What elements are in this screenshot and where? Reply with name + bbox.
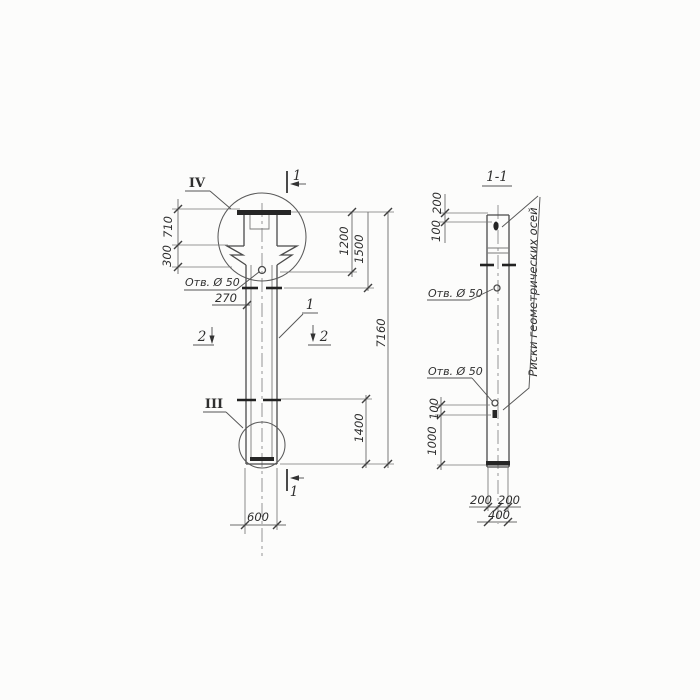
dim-600: 600 xyxy=(230,468,286,534)
dim-200-right-text: 200 xyxy=(498,493,520,507)
section-cut-1-top: 1 xyxy=(287,168,306,193)
axis-mark-lower xyxy=(493,410,498,418)
position-1-text: 1 xyxy=(306,297,315,313)
dim-270: 270 xyxy=(212,291,251,309)
dim-1200-text: 1200 xyxy=(337,226,351,255)
dim-7160-text: 7160 xyxy=(374,318,388,347)
hole-section-lower xyxy=(492,400,498,406)
section-title-text: 1-1 xyxy=(486,169,508,185)
dim-chain-section-top: 200 100 xyxy=(429,192,492,243)
cut-1-bottom-text: 1 xyxy=(290,484,299,500)
detail-III-text: III xyxy=(205,397,223,412)
detail-label-IV: IV xyxy=(185,176,231,209)
cut-2-left-text: 2 xyxy=(197,329,207,345)
section-cut-2-left: 2 xyxy=(193,327,215,345)
section-title: 1-1 xyxy=(482,169,512,186)
hole-section-upper xyxy=(494,285,500,291)
cut-arrow-left-icon xyxy=(290,475,299,481)
dim-chain-section-mid: 100 1000 xyxy=(425,397,491,470)
dim-600-text: 600 xyxy=(247,510,269,524)
corbel-right xyxy=(277,246,297,265)
corbel-left xyxy=(227,246,246,265)
dim-chain-left: 710 300 xyxy=(160,199,240,274)
column-drawing: IV III 1 1 2 xyxy=(0,0,700,700)
column-top-flange xyxy=(237,210,291,215)
drawing-sheet: IV III 1 1 2 xyxy=(0,0,700,700)
dim-1000-text: 1000 xyxy=(425,426,439,455)
dim-710-text: 710 xyxy=(161,216,175,238)
front-view: IV III 1 1 2 xyxy=(160,168,394,556)
section-view: 1-1 xyxy=(425,169,540,526)
dim-100-top-text: 100 xyxy=(429,220,443,242)
section-cut-1-bottom: 1 xyxy=(287,469,304,500)
detail-label-III: III xyxy=(203,397,243,428)
dim-400-text: 400 xyxy=(488,508,510,522)
dim-200-top-text: 200 xyxy=(430,192,444,214)
dim-1400-text: 1400 xyxy=(352,413,366,442)
dim-1500-text: 1500 xyxy=(352,234,366,263)
cut-2-right-text: 2 xyxy=(319,329,329,345)
cut-arrow-down-icon xyxy=(209,336,214,345)
dim-chain-section-bottom: 200 200 400 xyxy=(469,467,521,526)
dim-chain-right: 1200 1500 7160 1400 xyxy=(280,208,394,468)
section-bottom-end xyxy=(486,461,510,466)
hole-note-front-text: Отв. Ø 50 xyxy=(185,276,240,289)
dim-270-text: 270 xyxy=(215,291,237,305)
hole-note-section-upper: Отв. Ø 50 xyxy=(427,287,493,300)
axis-mark-upper xyxy=(493,222,498,231)
section-cut-2-right: 2 xyxy=(308,325,331,345)
dim-100-mid-text: 100 xyxy=(427,398,441,420)
cut-arrow-down-icon xyxy=(310,334,315,343)
axes-note: Риски геометрических осей xyxy=(502,196,540,410)
dim-300-text: 300 xyxy=(160,245,174,267)
column-bottom-end xyxy=(250,457,274,461)
detail-IV-text: IV xyxy=(189,176,206,191)
cut-1-top-text: 1 xyxy=(293,168,302,184)
column-shaft xyxy=(246,265,277,464)
hole-note-lower-text: Отв. Ø 50 xyxy=(428,365,483,378)
position-leader-1: 1 xyxy=(279,297,318,338)
hole-note-section-lower: Отв. Ø 50 xyxy=(427,365,492,401)
dim-200-left-text: 200 xyxy=(470,493,492,507)
